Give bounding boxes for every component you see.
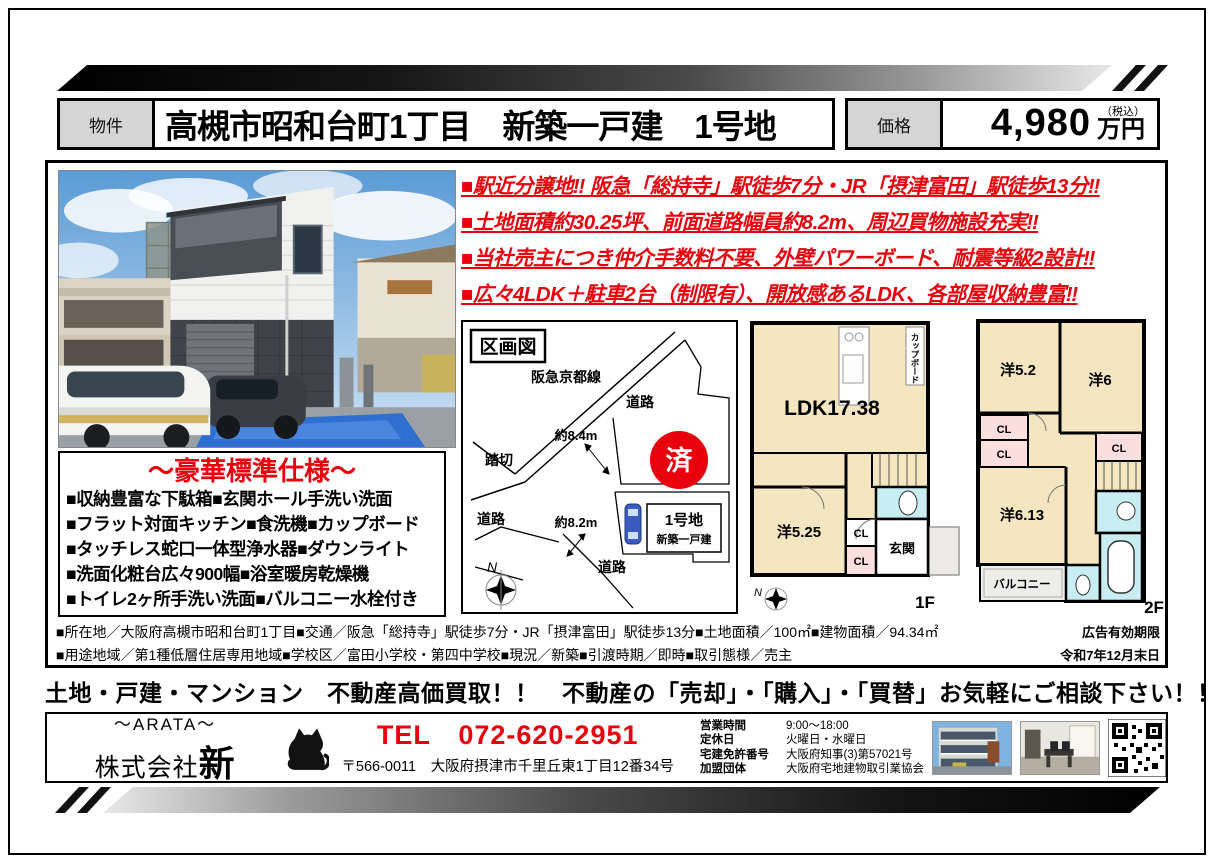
company-kana: ～ARATA～ — [47, 710, 283, 735]
spec-line-5: ■トイレ2ヶ所手洗い洗面■バルコニー水栓付き — [66, 587, 438, 612]
ldk-label: LDK17.38 — [784, 397, 880, 420]
highlight-line-4: ■広々4LDK＋駐車2台（制限有）、開放感あるLDK、各部屋収納豊富‼ — [461, 277, 1167, 313]
info-row: 営業時間9:00～18:00 — [700, 719, 924, 734]
company-main: 新 — [199, 743, 236, 784]
price-area: 4,980 （税込） 万円 — [943, 101, 1157, 147]
company-address: 〒566-0011 大阪府摂津市千里丘東1丁目12番34号 — [329, 755, 686, 776]
site-map-title: 区画図 — [479, 336, 536, 358]
company-block: ～ARATA～ 株式会社新 — [47, 708, 283, 787]
cupboard-label: カップボード — [910, 333, 920, 384]
qr-code — [1108, 719, 1166, 777]
spec-line-4: ■洗面化粧台広々900幅■浴室暖房乾燥機 — [66, 562, 438, 587]
compass-n-label: N — [487, 559, 498, 575]
info-row: 宅建免許番号大阪府知事(3)第57021号 — [700, 748, 924, 763]
lot1-name: 1号地 — [665, 511, 703, 529]
info-label: 営業時間 — [700, 719, 786, 734]
info-label: 定休日 — [700, 733, 786, 748]
phone-number[interactable]: TEL 072-620-2951 — [329, 719, 686, 751]
exterior-photo — [58, 170, 456, 448]
price-label: 価格 — [848, 101, 943, 147]
railway-label: 阪急京都線 — [531, 369, 601, 385]
property-label: 物件 — [60, 101, 155, 147]
cl-label: CL — [854, 528, 869, 540]
ad-validity-label: 広告有効期限 — [1082, 622, 1164, 644]
company-prefix: 株式会社 — [95, 754, 199, 782]
detail-row-2: ■用途地域／第1種低層住居専用地域■学校区／富田小学校・第四中学校■現況／新築■… — [56, 644, 1164, 667]
site-map: 区画図 阪急京都線 道路 踏切 道路 道路 約8.4m 約8.2m 済 1号地 … — [461, 320, 738, 614]
purchase-banner: 土地・戸建・マンション 不動産高価買取！！ 不動産の「売却」・「購入」・「買替」… — [45, 674, 1168, 708]
sold-label: 済 — [666, 445, 694, 476]
office-exterior-photo — [932, 721, 1012, 775]
spec-title: ～豪華標準仕様～ — [66, 455, 438, 487]
floor-plan-2f: 洋5.2 洋6 CL CL CL 洋6.13 バルコニー 2F — [970, 315, 1168, 615]
detail-line-2: ■用途地域／第1種低層住居専用地域■学校区／富田小学校・第四中学校■現況／新築■… — [56, 644, 792, 666]
price-unit: 万円 — [1097, 118, 1145, 142]
info-value: 大阪府知事(3)第57021号 — [786, 748, 913, 763]
crossing-label: 踏切 — [485, 452, 513, 468]
decor-bar-bottom — [103, 787, 1160, 813]
floor-plan-1f: LDK17.38 カップボード 洋5.25 CL CL 玄関 1F N — [742, 315, 968, 615]
room613-label: 洋6.13 — [1000, 506, 1044, 524]
spec-line-2: ■フラット対面キッチン■食洗機■カップボード — [66, 512, 438, 537]
info-value: 9:00～18:00 — [786, 719, 849, 734]
price-header: 価格 4,980 （税込） 万円 — [845, 98, 1160, 150]
cat-logo-icon — [281, 720, 329, 776]
price-value: 4,980 — [991, 104, 1091, 142]
property-title: 高槻市昭和台町1丁目 新築一戸建 1号地 — [155, 101, 832, 147]
highlight-line-1: ■駅近分譲地‼ 阪急「総持寺」駅徒歩7分・JR「摂津富田」駅徒歩13分‼ — [461, 169, 1167, 205]
road-left-label: 道路 — [477, 511, 506, 527]
info-label: 加盟団体 — [700, 762, 786, 777]
info-value: 火曜日・水曜日 — [786, 733, 867, 748]
main-content-box: ■駅近分譲地‼ 阪急「総持寺」駅徒歩7分・JR「摂津富田」駅徒歩13分‼ ■土地… — [45, 160, 1168, 668]
room6-label: 洋6 — [1088, 371, 1111, 389]
decor-bar-top — [57, 65, 1112, 91]
license-block: 営業時間9:00～18:00 定休日火曜日・水曜日 宅建免許番号大阪府知事(3)… — [686, 719, 1166, 777]
cl-label: CL — [997, 449, 1012, 461]
info-row: 定休日火曜日・水曜日 — [700, 733, 924, 748]
ad-validity-date: 令和7年12月末日 — [1060, 645, 1164, 667]
cl-label: CL — [997, 424, 1012, 436]
highlight-line-3: ■当社売主につき仲介手数料不要、外壁パワーボード、耐震等級2設計‼ — [461, 241, 1167, 277]
entrance-label: 玄関 — [889, 541, 915, 556]
detail-row-1: ■所在地／大阪府高槻市昭和台町1丁目■交通／阪急「総持寺」駅徒歩7分・JR「摂津… — [56, 621, 1164, 644]
room525-label: 洋5.25 — [777, 523, 821, 541]
flyer-page: 物件 高槻市昭和台町1丁目 新築一戸建 1号地 価格 4,980 （税込） 万円 — [0, 0, 1214, 863]
company-name: 株式会社新 — [47, 735, 283, 787]
license-table: 営業時間9:00～18:00 定休日火曜日・水曜日 宅建免許番号大阪府知事(3)… — [700, 719, 924, 777]
highlight-list: ■駅近分譲地‼ 阪急「総持寺」駅徒歩7分・JR「摂津富田」駅徒歩13分‼ ■土地… — [461, 169, 1167, 313]
compass-n-label: N — [754, 587, 762, 599]
contact-block: TEL 072-620-2951 〒566-0011 大阪府摂津市千里丘東1丁目… — [329, 719, 686, 776]
highlight-line-2: ■土地面積約30.25坪、前面道路幅員約8.2m、周辺買物施設充実‼ — [461, 205, 1167, 241]
cl-label: CL — [854, 556, 869, 568]
floor2-label: 2F — [1144, 598, 1164, 615]
compass-icon: N — [754, 587, 787, 610]
spec-line-1: ■収納豊富な下駄箱■玄関ホール手洗い洗面 — [66, 487, 438, 512]
road-bottom-label: 道路 — [598, 559, 627, 575]
room52-label: 洋5.2 — [1000, 361, 1036, 379]
info-row: 加盟団体大阪府宅地建物取引業協会 — [700, 762, 924, 777]
spec-line-3: ■タッチレス蛇口一体型浄水器■ダウンライト — [66, 537, 438, 562]
spec-box: ～豪華標準仕様～ ■収納豊富な下駄箱■玄関ホール手洗い洗面 ■フラット対面キッチ… — [58, 451, 446, 617]
property-header: 物件 高槻市昭和台町1丁目 新築一戸建 1号地 — [57, 98, 835, 150]
info-value: 大阪府宅地建物取引業協会 — [786, 762, 924, 777]
property-details: ■所在地／大阪府高槻市昭和台町1丁目■交通／阪急「総持寺」駅徒歩7分・JR「摂津… — [56, 621, 1164, 667]
floor1-label: 1F — [915, 593, 935, 612]
lot1-sub: 新築一戸建 — [657, 532, 713, 546]
cl-label: CL — [1112, 443, 1127, 455]
footer-box: ～ARATA～ 株式会社新 TEL 072-620-2951 〒566-0011… — [45, 712, 1168, 783]
info-label: 宅建免許番号 — [700, 748, 786, 763]
road-width1-label: 約8.4m — [555, 428, 598, 443]
balcony-label: バルコニー — [993, 578, 1050, 591]
detail-line-1: ■所在地／大阪府高槻市昭和台町1丁目■交通／阪急「総持寺」駅徒歩7分・JR「摂津… — [56, 621, 938, 643]
road-width2-label: 約8.2m — [555, 515, 598, 530]
office-interior-photo — [1020, 721, 1100, 775]
road-top-label: 道路 — [626, 394, 655, 410]
